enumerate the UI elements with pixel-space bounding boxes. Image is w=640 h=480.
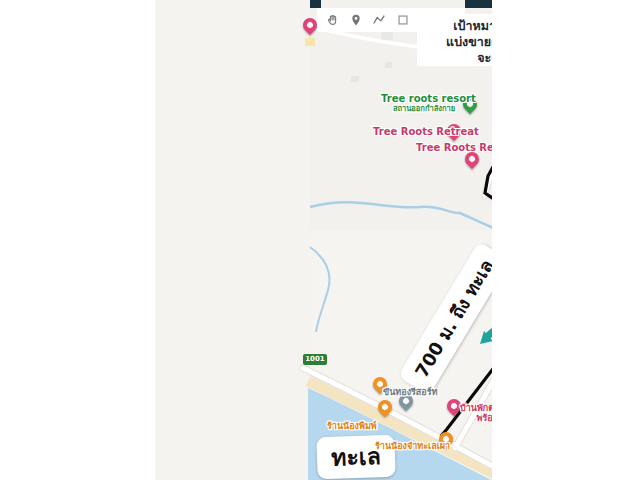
route-shield: 1001: [303, 354, 327, 365]
shape-square-icon[interactable]: [395, 12, 411, 28]
draw-line-icon[interactable]: [371, 12, 387, 28]
top-bar-right-segment: [465, 0, 492, 8]
poi-label-tree-roots-retreat-1[interactable]: Tree Roots Retreat: [373, 127, 479, 137]
poi-label-tree-roots-resort[interactable]: Tree roots resort สถานออกกำลังกาย: [381, 94, 467, 114]
poi-label-nong-pim[interactable]: ร้านน้องพิมพ์: [327, 421, 377, 431]
poi-label-takakard[interactable]: บ้านพักตากอากาศ พร้อมพงษ์: [460, 403, 492, 423]
collapsed-control: [381, 32, 393, 40]
add-marker-icon[interactable]: [348, 12, 364, 28]
clipped-yellow-patch: [305, 38, 315, 46]
poi-label-tree-roots-retreat-2[interactable]: Tree Roots Retreat: [416, 143, 492, 153]
annotation-line1: เป้าหมาย 10-3-35 ไร่: [417, 18, 492, 34]
map-artwork: [155, 0, 492, 480]
poi-label-nong-ja[interactable]: ร้านน้องจ๋าทะเลเผา: [375, 441, 450, 451]
sea-callout-text: ทะเล: [331, 438, 382, 476]
map-canvas[interactable]: เป้าหมาย 10-3-35 ไร่ แบ่งขายครับแล้วแต่ค…: [155, 0, 492, 480]
top-bar-left-segment: [310, 0, 321, 8]
screenshot-root: เป้าหมาย 10-3-35 ไร่ แบ่งขายครับแล้วแต่ค…: [0, 0, 640, 480]
annotation-box[interactable]: เป้าหมาย 10-3-35 ไร่ แบ่งขายครับแล้วแต่ค…: [417, 14, 492, 66]
annotation-line2: แบ่งขายครับแล้วแต่คนซื้อ: [417, 34, 492, 50]
annotation-line3: จะต้องการกี่ไร่: [417, 50, 492, 66]
pan-hand-icon[interactable]: [325, 12, 341, 28]
poi-label-khanthong-resort[interactable]: ขันทองรีสอร์ท: [383, 387, 438, 397]
